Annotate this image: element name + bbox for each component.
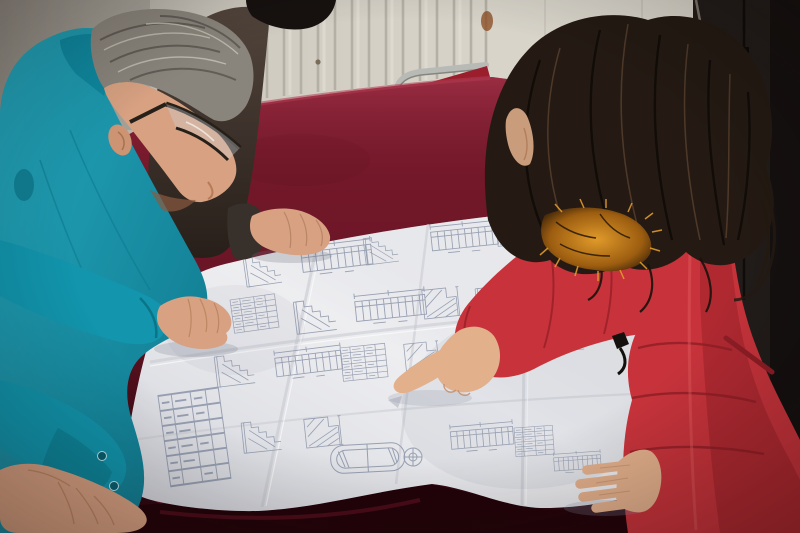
vignette bbox=[0, 0, 800, 533]
photo-scene bbox=[0, 0, 800, 533]
